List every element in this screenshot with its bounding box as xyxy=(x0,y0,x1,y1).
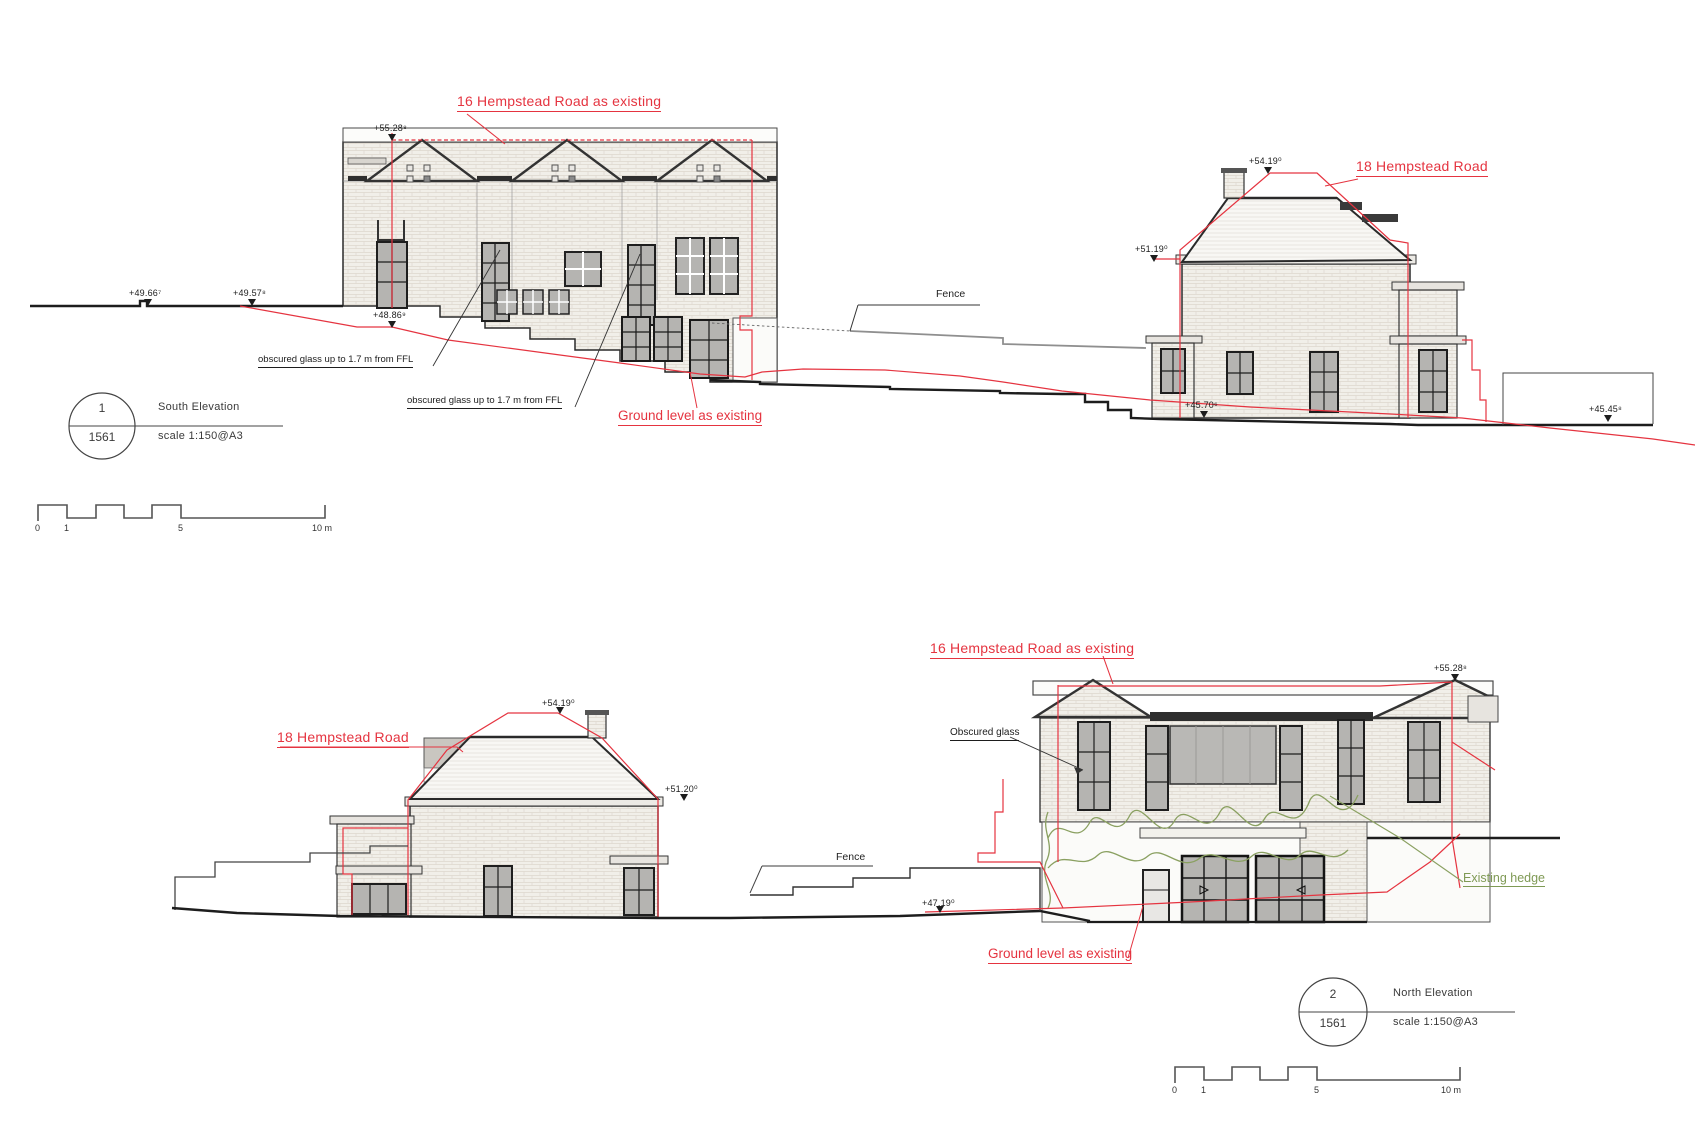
scalebar1-zero: 0 xyxy=(35,523,40,533)
level-ground-d-south: +45.70⁶ xyxy=(1185,400,1218,410)
sheet-number-1: 1561 xyxy=(80,431,124,445)
obscured-glass-label-north: Obscured glass xyxy=(950,727,1019,741)
scalebar1-five: 5 xyxy=(178,523,183,533)
house-16-south xyxy=(343,128,777,382)
drawing-scale-1: scale 1:150@A3 xyxy=(158,430,243,443)
ground-level-label-south: Ground level as existing xyxy=(618,408,762,426)
drawing-title-1: South Elevation xyxy=(158,401,240,414)
chimney-cap xyxy=(1221,168,1247,173)
scale-bar-north xyxy=(1175,1067,1460,1083)
level-ground-a-north: +47.19⁰ xyxy=(922,898,955,908)
outbuilding-outline xyxy=(1503,373,1653,425)
level-ridge18-south: +54.19⁰ xyxy=(1249,156,1282,166)
fence-leader-south xyxy=(850,305,980,331)
chimney-n xyxy=(588,714,606,738)
right-bay xyxy=(1390,282,1466,418)
drawing-number-2: 2 xyxy=(1316,988,1350,1002)
scalebar2-zero: 0 xyxy=(1172,1085,1177,1095)
level-ground-e-south: +45.45⁸ xyxy=(1589,404,1622,414)
upper-ground-steps-n xyxy=(750,868,1040,911)
rear-roof-band2 xyxy=(1362,214,1398,222)
elevation-sheet: 16 Hempstead Road as existing 18 Hempste… xyxy=(0,0,1695,1130)
house-18-label-south: 18 Hempstead Road xyxy=(1356,158,1488,177)
house-18-south-wall xyxy=(1182,264,1410,418)
chimney xyxy=(1224,172,1244,198)
level-eaves18-north: +51.20⁰ xyxy=(665,784,698,794)
right-parapet-cap-n xyxy=(1468,696,1498,722)
balcony-cornice xyxy=(1140,828,1306,838)
level-eaves18-south: +51.19⁰ xyxy=(1135,244,1168,254)
existing-hedge-label: Existing hedge xyxy=(1463,871,1545,887)
level-ridge18-north: +54.19⁰ xyxy=(542,698,575,708)
scalebar2-five: 5 xyxy=(1314,1085,1319,1095)
obscured-glass-label-1: obscured glass up to 1.7 m from FFL xyxy=(258,355,413,368)
scalebar2-ten: 10 m xyxy=(1441,1085,1461,1095)
fence-line-south xyxy=(850,331,1146,348)
ground-level-label-north: Ground level as existing xyxy=(988,946,1132,964)
fence-leader-north xyxy=(750,866,762,893)
house-18-south xyxy=(1146,168,1486,422)
drawing-number-1: 1 xyxy=(85,402,119,416)
house-16-label-south: 16 Hempstead Road as existing xyxy=(457,93,661,112)
left-parapet-cap xyxy=(348,158,386,164)
fence-label-south: Fence xyxy=(936,288,965,300)
scalebar1-one: 1 xyxy=(64,523,69,533)
rear-roof-band xyxy=(1340,202,1362,210)
drawing-title-2: North Elevation xyxy=(1393,987,1473,1000)
level-ground-b-south: +49.57⁸ xyxy=(233,288,266,298)
drawing-scale-2: scale 1:150@A3 xyxy=(1393,1016,1478,1029)
house-18-label-north: 18 Hempstead Road xyxy=(277,729,409,748)
hipped-roof xyxy=(1182,198,1410,262)
level-ground-c-south: +48.86⁹ xyxy=(373,310,406,320)
house-16-south-gables xyxy=(367,140,767,181)
ground-line-mid-n xyxy=(658,911,1090,921)
scalebar2-one: 1 xyxy=(1201,1085,1206,1095)
scale-bar-south xyxy=(38,505,325,521)
house-16-label-north: 16 Hempstead Road as existing xyxy=(930,640,1134,659)
ground-line-left xyxy=(30,301,343,306)
sheet-number-2: 1561 xyxy=(1311,1017,1355,1031)
fence-label-north: Fence xyxy=(836,851,865,863)
level-ground-a-south: +49.66⁷ xyxy=(129,288,161,298)
chimney-cap-n xyxy=(585,710,609,715)
level-ridge16-south: +55.28⁸ xyxy=(374,123,407,133)
obscured-glass-label-2: obscured glass up to 1.7 m from FFL xyxy=(407,396,562,409)
level-ridge16-north: +55.28⁸ xyxy=(1434,663,1467,673)
house18-label-leader xyxy=(1325,179,1358,186)
house16n-label-leader xyxy=(1103,656,1113,684)
lower-ground-glazing xyxy=(622,317,777,382)
scalebar1-ten: 10 m xyxy=(312,523,332,533)
